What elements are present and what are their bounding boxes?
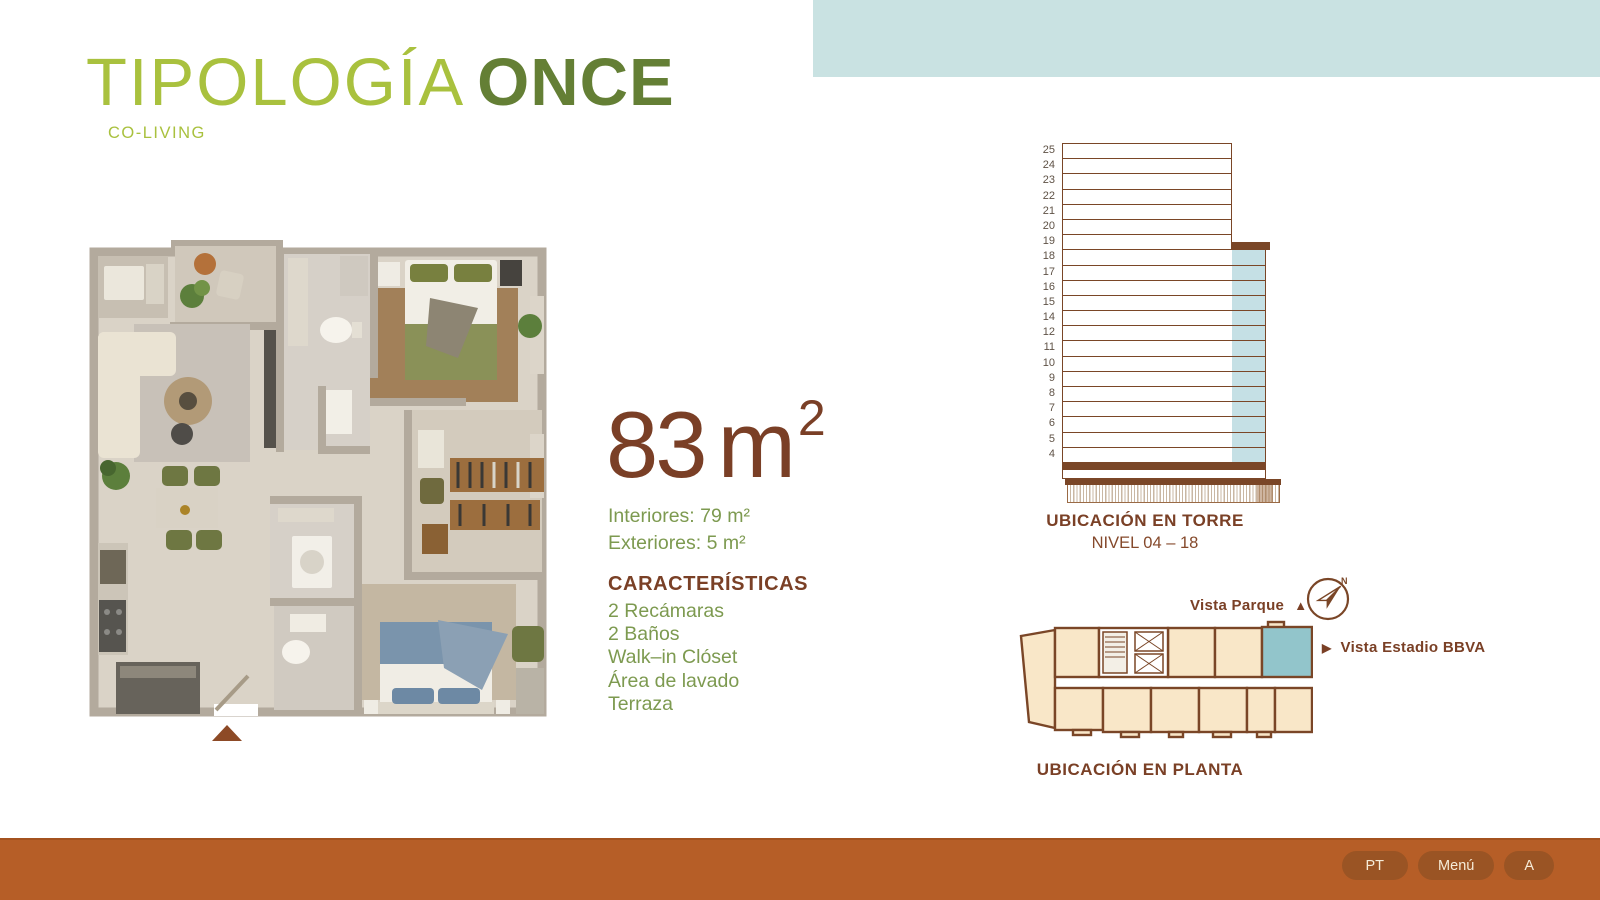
tower-floor-box: [1062, 401, 1266, 416]
tower-floor-number: 22: [1028, 189, 1062, 204]
right-triangle-icon: ▶: [1322, 641, 1332, 655]
tower-rows: 252423222120191817161514121110987654: [1028, 143, 1273, 462]
tower-floor-box: [1062, 280, 1266, 295]
tower-ground-floor: [1062, 470, 1266, 479]
footer-button-menú[interactable]: Menú: [1418, 851, 1494, 880]
footer-button-a[interactable]: A: [1504, 851, 1554, 880]
exteriors-area: Exteriores: 5 m²: [608, 532, 746, 555]
tower-floor-box: [1062, 371, 1266, 386]
features-title: CARACTERÍSTICAS: [608, 573, 808, 596]
tower-floor-number: 8: [1028, 386, 1062, 401]
tower-floor-row: 10: [1028, 356, 1273, 371]
tower-floor-row: 19: [1028, 234, 1273, 249]
tower-level-range: NIVEL 04 – 18: [1020, 534, 1270, 553]
tower-floor-number: 20: [1028, 219, 1062, 234]
tower-floor-row: 5: [1028, 432, 1273, 447]
tower-floor-row: 23: [1028, 173, 1273, 188]
tower-floor-row: 21: [1028, 204, 1273, 219]
tower-floor-number: 21: [1028, 204, 1062, 219]
footer-buttons: PTMenúA: [1342, 851, 1554, 880]
tower-floor-box: [1062, 249, 1266, 264]
tower-floor-row: 24: [1028, 158, 1273, 173]
tower-floor-box: [1062, 234, 1232, 249]
tower-floor-box: [1062, 295, 1266, 310]
tower-slab: [1062, 462, 1266, 470]
tower-floor-box: [1062, 189, 1232, 204]
tower-floor-box: [1062, 447, 1266, 462]
tower-floor-number: 24: [1028, 158, 1062, 173]
tower-floor-number: 12: [1028, 325, 1062, 340]
tower-floor-number: 18: [1028, 249, 1062, 264]
tower-floor-number: 17: [1028, 265, 1062, 280]
view-estadio-label: ▶Vista Estadio BBVA: [1322, 639, 1485, 656]
tower-caption: UBICACIÓN EN TORRE: [1020, 511, 1270, 531]
tower-floor-box: [1062, 173, 1232, 188]
tower-floor-row: 14: [1028, 310, 1273, 325]
compass-north-label: N: [1341, 576, 1348, 586]
tower-floor-number: 25: [1028, 143, 1062, 158]
tower-floor-box: [1062, 219, 1232, 234]
footer-bar: PTMenúA: [0, 838, 1600, 900]
tower-floor-row: 11: [1028, 340, 1273, 355]
view-parque-label: Vista Parque▲: [1190, 597, 1307, 614]
tower-floor-number: 11: [1028, 340, 1062, 355]
tower-floor-number: 16: [1028, 280, 1062, 295]
tower-floor-number: 23: [1028, 173, 1062, 188]
tower-floor-row: 6: [1028, 416, 1273, 431]
area-unit: m: [718, 399, 796, 491]
view-estadio-text: Vista Estadio BBVA: [1341, 639, 1486, 656]
tower-floor-row: 9: [1028, 371, 1273, 386]
tower-floor-row: 15: [1028, 295, 1273, 310]
compass-icon: N: [1303, 572, 1355, 624]
tower-floor-box: [1062, 340, 1266, 355]
tower-floor-number: 7: [1028, 401, 1062, 416]
interiors-area: Interiores: 79 m²: [608, 505, 750, 528]
tower-floor-row: 25: [1028, 143, 1273, 158]
tower-floor-box: [1062, 204, 1232, 219]
plate-core: [1099, 628, 1168, 677]
tower-floor-number: 6: [1028, 416, 1062, 431]
page-title: TIPOLOGÍAONCE: [86, 50, 675, 127]
tower-floor-box: [1062, 356, 1266, 371]
slide: TIPOLOGÍAONCE CO-LIVING: [0, 0, 1600, 900]
tower-floor-box: [1062, 143, 1232, 158]
tower-floor-number: 15: [1028, 295, 1062, 310]
tower-floor-number: 10: [1028, 356, 1062, 371]
tower-floor-box: [1062, 386, 1266, 401]
floor-plan-render: [78, 238, 558, 743]
feature-item: 2 Baños: [608, 623, 739, 646]
tower-floor-number: 14: [1028, 310, 1062, 325]
plate-caption: UBICACIÓN EN PLANTA: [1015, 760, 1265, 780]
title-light: TIPOLOGÍA: [86, 45, 465, 120]
feature-item: Área de lavado: [608, 670, 739, 693]
tower-diagram: 252423222120191817161514121110987654: [1028, 143, 1273, 503]
view-parque-text: Vista Parque: [1190, 597, 1284, 614]
tower-floor-box: [1062, 158, 1232, 173]
tower-floor-row: 18: [1028, 249, 1273, 264]
feature-item: Terraza: [608, 693, 739, 716]
area-value: 83: [606, 399, 705, 491]
tower-floor-number: 5: [1028, 432, 1062, 447]
tower-floor-box: [1062, 310, 1266, 325]
tower-floor-row: 20: [1028, 219, 1273, 234]
feature-item: Walk–in Clóset: [608, 646, 739, 669]
footer-button-pt[interactable]: PT: [1342, 851, 1409, 880]
feature-item: 2 Recámaras: [608, 600, 739, 623]
floor-plate-diagram: [1013, 610, 1313, 750]
tower-floor-row: 17: [1028, 265, 1273, 280]
title-bold: ONCE: [477, 45, 675, 120]
tower-floor-row: 16: [1028, 280, 1273, 295]
area-summary: 83 m 2: [606, 399, 826, 491]
area-exponent: 2: [798, 395, 826, 441]
tower-floor-row: 8: [1028, 386, 1273, 401]
tower-floor-row: 12: [1028, 325, 1273, 340]
plate-unit: [1021, 630, 1055, 728]
plate-highlighted-unit: [1262, 627, 1312, 677]
tower-floor-row: 22: [1028, 189, 1273, 204]
tower-floor-number: 19: [1028, 234, 1062, 249]
tower-floor-box: [1062, 432, 1266, 447]
tower-floor-number: 9: [1028, 371, 1062, 386]
tower-floor-box: [1062, 416, 1266, 431]
entrance-arrow-icon: [212, 725, 242, 741]
features-list: 2 Recámaras2 BañosWalk–in ClósetÁrea de …: [608, 600, 739, 716]
tower-floor-number: 4: [1028, 447, 1062, 462]
tower-floor-row: 7: [1028, 401, 1273, 416]
tower-podium: [1067, 485, 1280, 503]
teal-banner: [813, 0, 1600, 77]
tower-floor-row: 4: [1028, 447, 1273, 462]
tower-floor-box: [1062, 325, 1266, 340]
subtitle: CO-LIVING: [108, 124, 206, 143]
tower-floor-box: [1062, 265, 1266, 280]
